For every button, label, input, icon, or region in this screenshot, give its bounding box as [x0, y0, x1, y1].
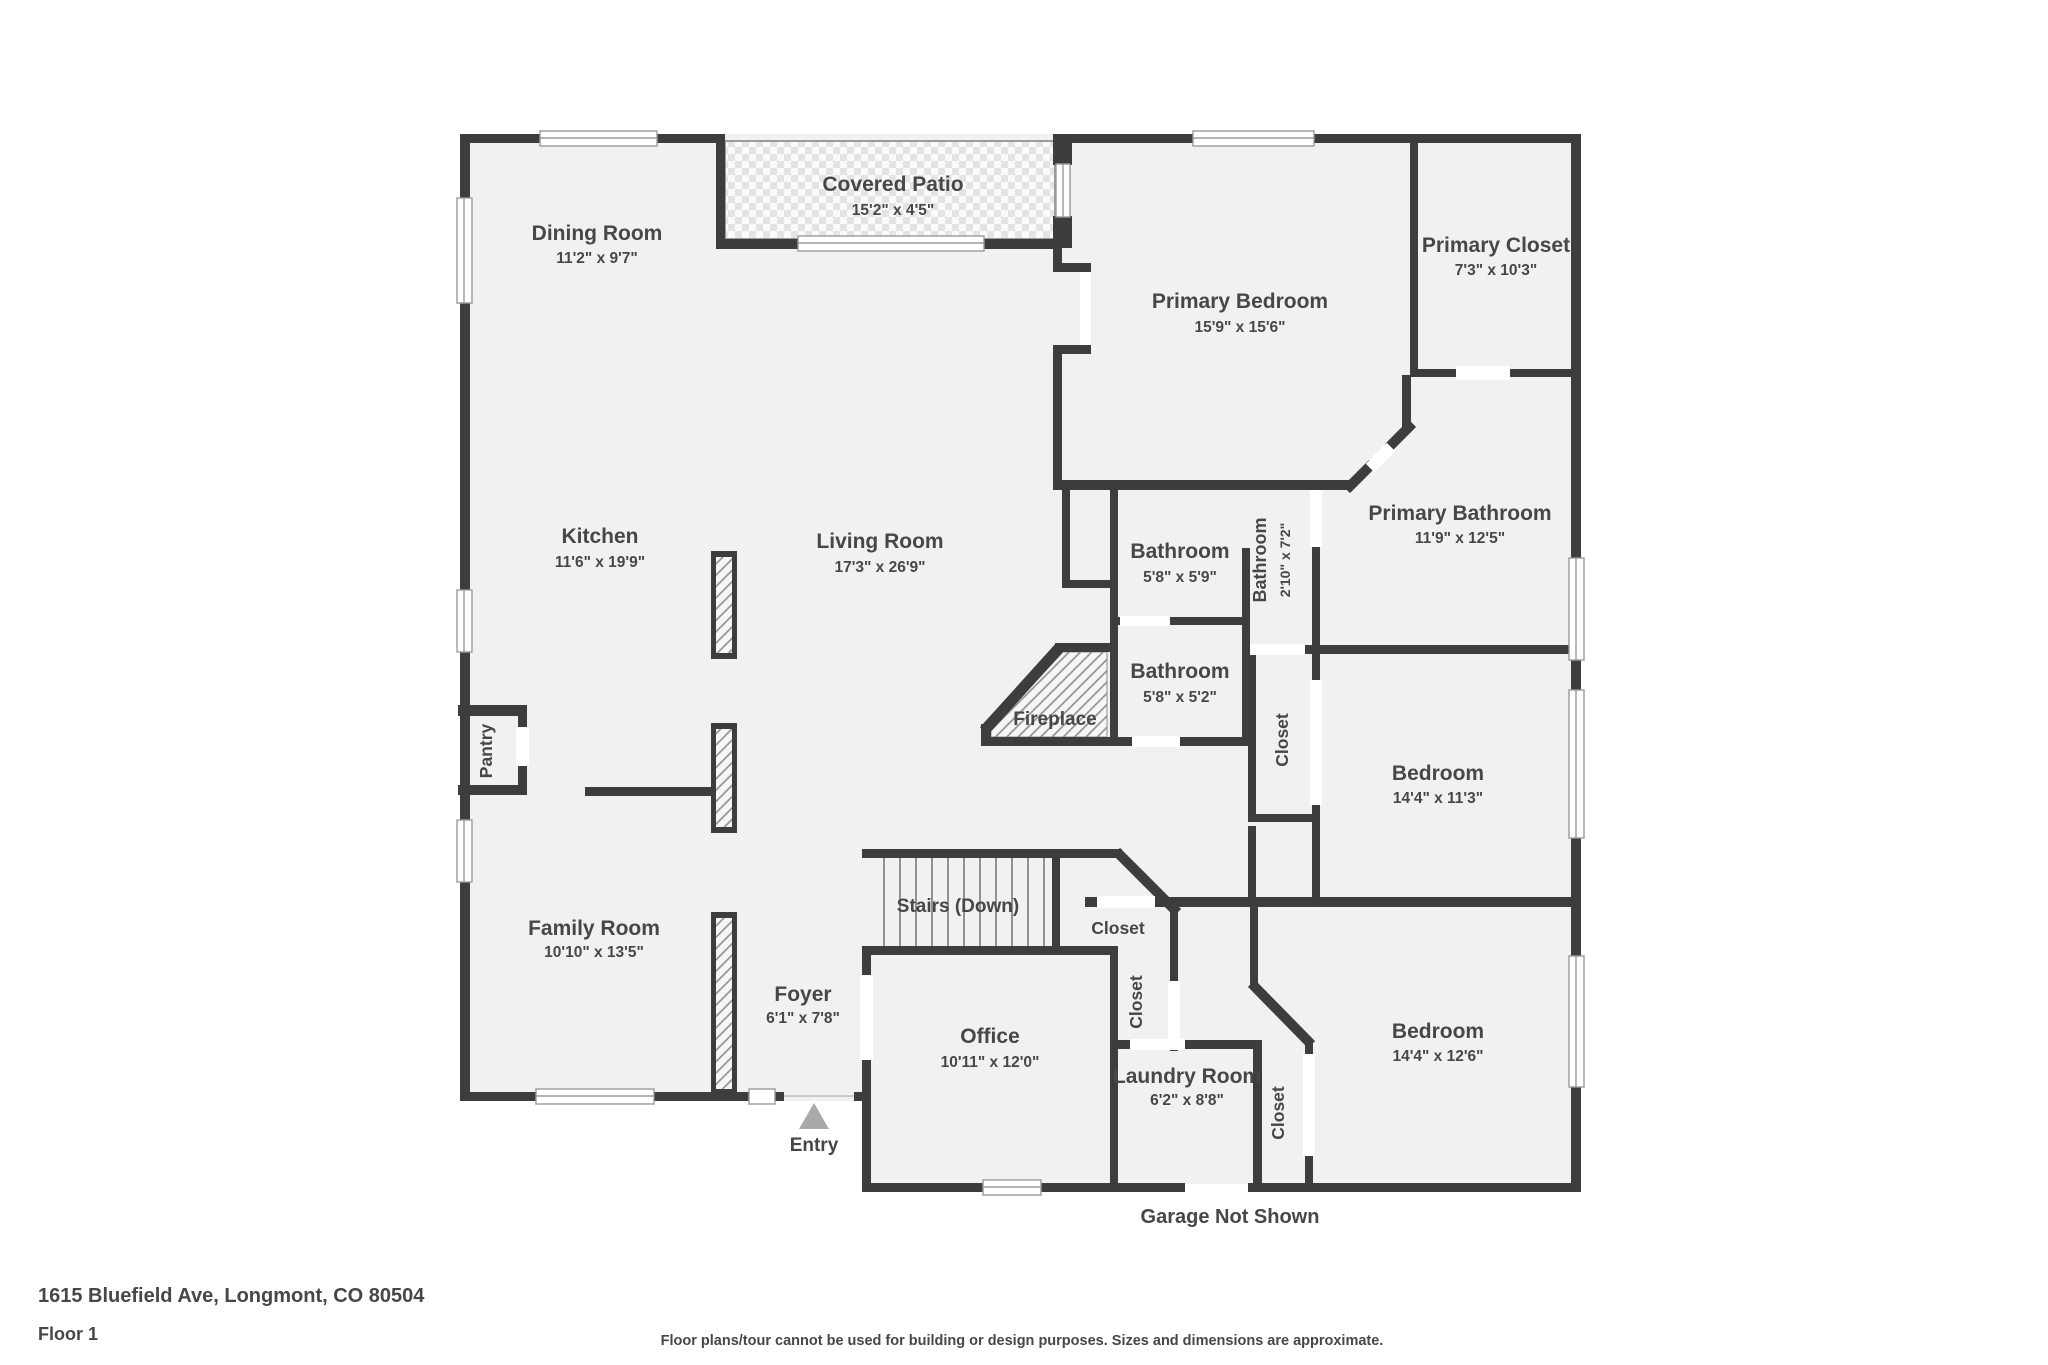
room-label-bedroom1: Bedroom [1392, 762, 1484, 785]
room-dims-office: 10'11" x 12'0" [941, 1054, 1040, 1071]
label-closet-bedroom1: Closet [1272, 713, 1292, 767]
room-label-family-room: Family Room [528, 917, 660, 940]
room-label-bedroom2: Bedroom [1392, 1020, 1484, 1043]
label-pantry: Pantry [476, 724, 496, 779]
room-dims-bathroom-mid: 5'8" x 5'2" [1143, 689, 1217, 706]
room-label-primary-bedroom: Primary Bedroom [1152, 290, 1328, 313]
room-dims-foyer: 6'1" x 7'8" [766, 1010, 840, 1027]
room-dims-primary-bathroom: 11'9" x 12'5" [1415, 530, 1505, 547]
label-garage-note: Garage Not Shown [1141, 1206, 1320, 1228]
footer-disclaimer: Floor plans/tour cannot be used for buil… [661, 1333, 1384, 1349]
footer-address: 1615 Bluefield Ave, Longmont, CO 80504 [38, 1285, 425, 1307]
room-label-laundry: Laundry Room [1113, 1065, 1261, 1088]
room-label-bathroom-top: Bathroom [1130, 540, 1229, 563]
room-dims-bedroom1: 14'4" x 11'3" [1393, 790, 1483, 807]
room-dims-bedroom2: 14'4" x 12'6" [1392, 1048, 1483, 1065]
room-dims-kitchen: 11'6" x 19'9" [555, 554, 645, 571]
footer-floor-label: Floor 1 [38, 1324, 98, 1344]
room-dims-laundry: 6'2" x 8'8" [1150, 1092, 1224, 1109]
room-dims-bathroom-small: 2'10" x 7'2" [1277, 523, 1293, 597]
room-label-primary-closet: Primary Closet [1422, 234, 1570, 257]
room-label-office: Office [960, 1025, 1020, 1048]
room-label-bathroom-small: Bathroom [1250, 518, 1270, 603]
floorplan-canvas: Covered Patio 15'2" x 4'5" Dining Room 1… [0, 0, 2048, 1365]
room-dims-primary-closet: 7'3" x 10'3" [1455, 262, 1537, 279]
room-dims-dining-room: 11'2" x 9'7" [556, 250, 638, 267]
label-closet-bedroom2: Closet [1268, 1086, 1288, 1140]
room-dims-bathroom-top: 5'8" x 5'9" [1143, 569, 1217, 586]
room-dims-covered-patio: 15'2" x 4'5" [852, 202, 934, 219]
room-label-foyer: Foyer [774, 983, 831, 1006]
label-closet-stairs: Closet [1091, 918, 1145, 938]
label-entry: Entry [790, 1135, 839, 1156]
room-label-dining-room: Dining Room [532, 222, 663, 245]
label-stairs: Stairs (Down) [897, 896, 1019, 917]
room-label-bathroom-mid: Bathroom [1130, 660, 1229, 683]
room-dims-primary-bedroom: 15'9" x 15'6" [1194, 319, 1285, 336]
room-label-primary-bathroom: Primary Bathroom [1368, 502, 1551, 525]
room-dims-living-room: 17'3" x 26'9" [834, 559, 925, 576]
floorplan-page: Covered Patio 15'2" x 4'5" Dining Room 1… [0, 0, 2048, 1365]
room-label-covered-patio: Covered Patio [822, 173, 963, 196]
room-dims-family-room: 10'10" x 13'5" [544, 944, 644, 961]
room-label-kitchen: Kitchen [561, 525, 638, 548]
label-closet-hall: Closet [1126, 975, 1146, 1029]
label-fireplace: Fireplace [1013, 709, 1096, 730]
entry-marker-icon [799, 1103, 829, 1129]
room-label-living-room: Living Room [816, 530, 943, 553]
